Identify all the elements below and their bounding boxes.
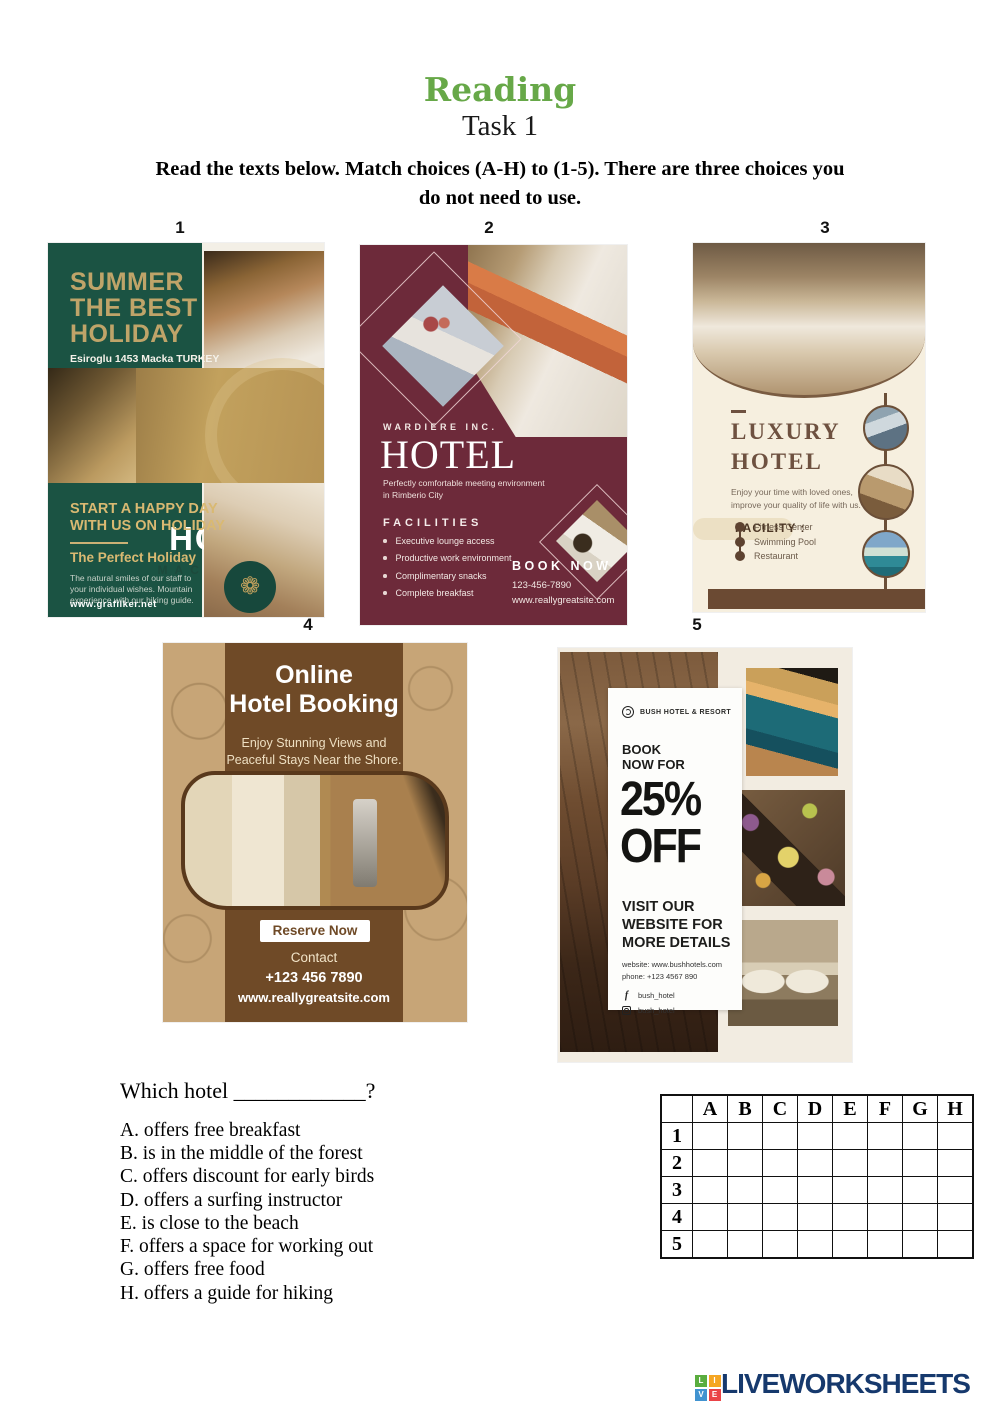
answer-cell[interactable] [938, 1150, 974, 1177]
answer-cell[interactable] [833, 1231, 868, 1259]
answer-cell[interactable] [833, 1150, 868, 1177]
grid-row-3: 3 [661, 1177, 973, 1204]
flyer1-headline: SUMMER THE BEST HOLIDAY [70, 269, 198, 347]
answer-cell[interactable] [798, 1177, 833, 1204]
answer-cell[interactable] [693, 1204, 728, 1231]
flyer5-instagram-handle: bush_hotel [638, 1006, 675, 1015]
bullet-dot-icon [735, 551, 745, 561]
flyer4-title: Online [225, 661, 403, 690]
answer-cell[interactable] [728, 1204, 763, 1231]
flyer5-pool-photo [746, 668, 838, 776]
bullet-dot-icon [383, 556, 387, 560]
grid-col-header-e: E [833, 1095, 868, 1123]
flyer4-subtitle: Enjoy Stunning Views and Peaceful Stays … [215, 735, 413, 769]
flyer-3-luxury-hotel: LUXURY HOTEL Enjoy your time with loved … [693, 243, 925, 612]
grid-row-4: 4 [661, 1204, 973, 1231]
flyer-1-macka-suit-hotel: SUMMER THE BEST HOLIDAY Esiroglu 1453 Ma… [48, 243, 324, 617]
worksheet-page: Reading Task 1 Read the texts below. Mat… [0, 0, 1000, 1414]
facility-item: Productive work environment [383, 553, 512, 563]
reserve-now-button: Reserve Now [260, 920, 370, 942]
door-lock-plate [353, 799, 377, 887]
bullet-dot-icon [735, 537, 745, 547]
answer-cell[interactable] [868, 1204, 903, 1231]
grid-header-row: A B C D E F G H [661, 1095, 973, 1123]
flyer-number-2: 2 [477, 218, 501, 238]
answer-cell[interactable] [728, 1123, 763, 1150]
grid-row-header-4: 4 [661, 1204, 693, 1231]
answer-cell[interactable] [763, 1231, 798, 1259]
grid-row-header-2: 2 [661, 1150, 693, 1177]
answer-cell[interactable] [903, 1204, 938, 1231]
flyer4-door-handle-photo [181, 771, 449, 910]
answer-cell[interactable] [693, 1231, 728, 1259]
answer-cell[interactable] [868, 1150, 903, 1177]
facility-item: Fitness Center [754, 522, 813, 532]
flyer4-phone: +123 456 7890 [225, 970, 403, 986]
flyer5-brand-row: BUSH HOTEL & RESORT [622, 706, 731, 718]
grid-col-header-c: C [763, 1095, 798, 1123]
flyer5-bedroom-photo [728, 920, 838, 1026]
grid-corner-cell [661, 1095, 693, 1123]
answer-grid: A B C D E F G H 1 2 3 4 5 [660, 1094, 974, 1259]
flyer5-book-now-for: BOOK NOW FOR [622, 742, 685, 772]
flyer5-discount: 25% OFF [620, 776, 700, 870]
flyer5-phone: phone: +123 4567 890 [622, 972, 697, 981]
grid-row-header-1: 1 [661, 1123, 693, 1150]
answer-cell[interactable] [868, 1123, 903, 1150]
flyer1-gold-band: HOTEL MACKA SUIT [48, 368, 324, 483]
facility-item: Swimming Pool [754, 537, 816, 547]
answer-cell[interactable] [833, 1177, 868, 1204]
task-title: Task 1 [0, 110, 1000, 143]
flyer-number-3: 3 [813, 218, 837, 238]
divider [70, 542, 128, 544]
answer-cell[interactable] [938, 1231, 974, 1259]
flyer5-website: website: www.bushhotels.com [622, 960, 722, 969]
choice-f: F. offers a space for working out [120, 1236, 373, 1258]
flyer-5-bush-hotel-resort: BUSH HOTEL & RESORT BOOK NOW FOR 25% OFF… [558, 648, 852, 1062]
grid-col-header-b: B [728, 1095, 763, 1123]
answer-cell[interactable] [693, 1177, 728, 1204]
answer-cell[interactable] [798, 1150, 833, 1177]
facility-item: Complimentary snacks [383, 571, 487, 581]
choice-d: D. offers a surfing instructor [120, 1190, 342, 1212]
hotel-ornament-badge-icon: ❁ [224, 561, 276, 613]
flyer-2-wardiere-hotel: WARDIERE INC. HOTEL Perfectly comfortabl… [360, 245, 627, 625]
answer-cell[interactable] [693, 1150, 728, 1177]
answer-cell[interactable] [693, 1123, 728, 1150]
accent-dash [731, 410, 746, 413]
flyer2-tagline: Perfectly comfortable meeting environmen… [383, 477, 545, 501]
bullet-dot-icon [735, 522, 745, 532]
instagram-icon [622, 1006, 631, 1015]
answer-cell[interactable] [938, 1177, 974, 1204]
answer-cell[interactable] [763, 1123, 798, 1150]
flyer3-fitness-photo [863, 405, 909, 451]
grid-row-header-5: 5 [661, 1231, 693, 1259]
flyer5-instagram-row: bush_hotel [622, 1006, 675, 1015]
answer-cell[interactable] [903, 1177, 938, 1204]
choice-e: E. is close to the beach [120, 1213, 299, 1235]
answer-cell[interactable] [938, 1204, 974, 1231]
flyer2-hotel-name: HOTEL [380, 431, 516, 478]
answer-cell[interactable] [763, 1204, 798, 1231]
grid-row-1: 1 [661, 1123, 973, 1150]
flyer5-facebook-handle: bush_hotel [638, 991, 675, 1000]
grid-col-header-f: F [868, 1095, 903, 1123]
grid-col-header-g: G [903, 1095, 938, 1123]
answer-cell[interactable] [903, 1123, 938, 1150]
flyer1-slogan: START A HAPPY DAY WITH US ON HOLIDAY [70, 501, 225, 535]
answer-cell[interactable] [903, 1150, 938, 1177]
liveworksheets-logo-icon: L I V E [695, 1375, 721, 1401]
flyer5-white-card: BUSH HOTEL & RESORT BOOK NOW FOR 25% OFF… [608, 688, 742, 1010]
answer-cell[interactable] [903, 1231, 938, 1259]
grid-row-5: 5 [661, 1231, 973, 1259]
flyer-number-1: 1 [168, 218, 192, 238]
facebook-icon: f [622, 990, 631, 1001]
facility-item: Executive lounge access [383, 536, 495, 546]
page-title: Reading [0, 70, 1000, 109]
question-text: Which hotel ____________? [120, 1078, 375, 1104]
grid-col-header-h: H [938, 1095, 974, 1123]
flyer3-hotel-name: HOTEL [731, 449, 823, 475]
answer-cell[interactable] [833, 1123, 868, 1150]
flyer3-pool-photo [862, 530, 910, 578]
bullet-dot-icon [383, 574, 387, 578]
answer-cell[interactable] [798, 1204, 833, 1231]
flyer5-facebook-row: f bush_hotel [622, 990, 675, 1001]
answer-cell[interactable] [763, 1150, 798, 1177]
bullet-dot-icon [383, 539, 387, 543]
flyer1-subhead: The Perfect Holiday [70, 550, 196, 565]
choice-b: B. is in the middle of the forest [120, 1143, 363, 1165]
logo-square-i: I [709, 1375, 721, 1387]
flyer5-brand-name: BUSH HOTEL & RESORT [640, 709, 731, 716]
flyer1-building-photo [48, 368, 136, 483]
answer-cell[interactable] [763, 1177, 798, 1204]
bullet-dot-icon [383, 591, 387, 595]
logo-square-l: L [695, 1375, 707, 1387]
flyer1-lobby-photo [204, 251, 324, 368]
grid-row-2: 2 [661, 1150, 973, 1177]
choice-a: A. offers free breakfast [120, 1120, 300, 1142]
answer-cell[interactable] [798, 1231, 833, 1259]
answer-cell[interactable] [938, 1123, 974, 1150]
instructions-line: do not need to use. [0, 187, 1000, 210]
flyer3-restaurant-photo [858, 464, 914, 520]
flyer5-visit-text: VISIT OUR WEBSITE FOR MORE DETAILS [622, 898, 730, 952]
flyer-4-online-hotel-booking: Online Hotel Booking Enjoy Stunning View… [163, 643, 467, 1022]
grid-col-header-a: A [693, 1095, 728, 1123]
flyer2-phone: 123-456-7890 [512, 580, 571, 591]
flyer3-bottom-bar [708, 589, 925, 609]
logo-square-e: E [709, 1389, 721, 1401]
flyer4-website: www.reallygreatsite.com [225, 990, 403, 1005]
grid-row-header-3: 3 [661, 1177, 693, 1204]
answer-cell[interactable] [868, 1231, 903, 1259]
facility-item: Restaurant [754, 551, 798, 561]
bush-hotel-logo-icon [622, 706, 634, 718]
answer-cell[interactable] [868, 1177, 903, 1204]
flyer1-address: Esiroglu 1453 Macka TURKEY [70, 353, 219, 365]
instructions-line: Read the texts below. Match choices (A-H… [0, 158, 1000, 181]
grid-col-header-d: D [798, 1095, 833, 1123]
flyer2-facilities-title: FACILITIES [383, 517, 482, 529]
flyer3-tagline: Enjoy your time with loved ones, improve… [731, 486, 861, 511]
flyer-number-5: 5 [685, 615, 709, 635]
answer-cell[interactable] [728, 1231, 763, 1259]
answer-cell[interactable] [728, 1150, 763, 1177]
flyer3-hotel-name: LUXURY [731, 419, 841, 445]
flyer3-bedroom-photo [693, 243, 925, 398]
answer-cell[interactable] [798, 1123, 833, 1150]
flyer1-website: www.grafilker.net [70, 599, 157, 610]
logo-square-v: V [695, 1389, 707, 1401]
flyer2-website: www.reallygreatsite.com [512, 595, 614, 606]
answer-cell[interactable] [833, 1204, 868, 1231]
flyer-number-4: 4 [296, 615, 320, 635]
flyer4-contact-label: Contact [225, 950, 403, 965]
choice-c: C. offers discount for early birds [120, 1166, 374, 1188]
flyer4-title: Hotel Booking [225, 690, 403, 719]
choice-g: G. offers free food [120, 1259, 265, 1281]
answer-cell[interactable] [728, 1177, 763, 1204]
liveworksheets-wordmark: LIVEWORKSHEETS [721, 1368, 970, 1400]
choice-h: H. offers a guide for hiking [120, 1283, 333, 1305]
flyer2-book-now: BOOK NOW [512, 559, 612, 573]
facility-item: Complete breakfast [383, 588, 474, 598]
